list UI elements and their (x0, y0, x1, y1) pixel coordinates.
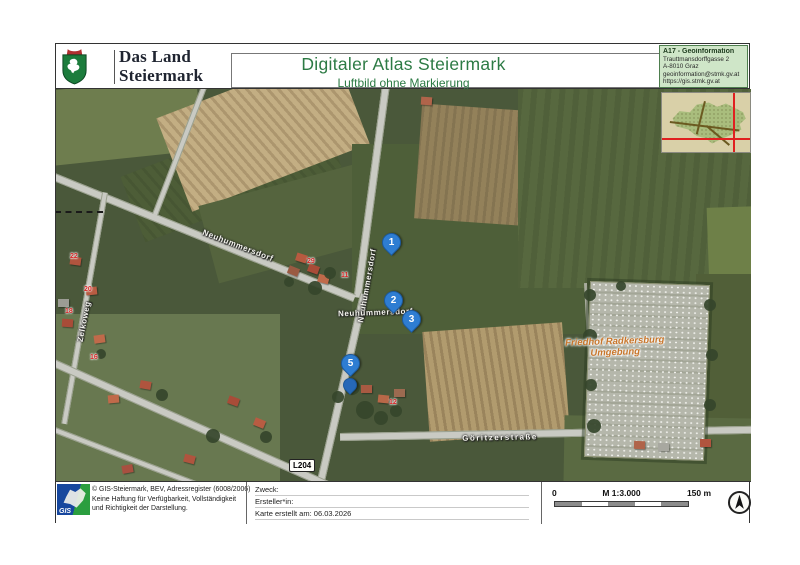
tree (587, 419, 601, 433)
tree (585, 379, 597, 391)
field-brown (414, 104, 526, 226)
house (361, 385, 372, 393)
marker-label: 3 (403, 311, 420, 328)
house-number: 11 (341, 272, 348, 279)
tree (390, 405, 402, 417)
house-number: 12 (389, 399, 397, 406)
department-city: A-8010 Graz (663, 63, 744, 71)
tree (260, 431, 272, 443)
house (421, 97, 433, 106)
grid-tick-mark (56, 211, 103, 213)
house-number: 16 (90, 354, 98, 361)
gis-logo-text: GIS (59, 508, 71, 515)
house (658, 443, 669, 451)
copyright-line2: Keine Haftung für Verfügbarkeit, Vollstä… (92, 495, 250, 505)
tree (356, 401, 374, 419)
scale-bar (554, 501, 689, 507)
cemetery-area (584, 281, 710, 461)
tree (206, 429, 220, 443)
house (634, 441, 645, 449)
house (378, 394, 390, 403)
scale-end-label: 150 m (667, 488, 731, 498)
marker-label: 1 (383, 234, 400, 251)
department-name: A17 - Geoinformation (663, 48, 744, 56)
house (307, 263, 320, 274)
tree (324, 267, 336, 279)
created-date-field: Karte erstellt am: 06.03.2026 (255, 508, 529, 520)
copyright-text: © GIS-Steiermark, BEV, Adressregister (6… (92, 485, 250, 514)
house (108, 395, 120, 404)
tree (706, 349, 718, 361)
logo-divider (114, 50, 115, 84)
tree (374, 411, 388, 425)
house (394, 389, 405, 397)
department-url: https://gis.stmk.gv.at (663, 78, 744, 86)
inset-crosshair-vertical (733, 93, 735, 152)
map-canvas[interactable]: Neuhummersdorf Neuhummersdorf Neuhummers… (56, 89, 751, 482)
house (139, 380, 151, 390)
gis-logo-landmass (61, 486, 87, 510)
house (700, 439, 711, 447)
house (58, 299, 69, 307)
house-number: 22 (70, 253, 78, 260)
tree (332, 391, 344, 403)
tree (584, 289, 596, 301)
route-badge-l204: L204 (289, 459, 315, 472)
map-sheet: Das Land Steiermark Digitaler Atlas Stei… (55, 43, 750, 523)
page-title: Digitaler Atlas Steiermark (116, 54, 691, 75)
inset-crosshair-horizontal (662, 138, 750, 140)
house (93, 334, 105, 343)
department-email: geoinformation@stmk.gv.at (663, 71, 744, 79)
title-wrap: Digitaler Atlas Steiermark Luftbild ohne… (116, 54, 691, 90)
gis-logo: GIS (57, 484, 90, 515)
tree (616, 281, 626, 291)
cemetery-label: Friedhof Radkersburg Umgebung (556, 334, 675, 360)
street-label-goritzerstrasse: Göritzerstraße (444, 432, 556, 443)
copyright-line3: und Richtigkeit der Darstellung. (92, 504, 250, 514)
marker-label: 5 (342, 355, 359, 372)
copyright-line1: © GIS-Steiermark, BEV, Adressregister (6… (92, 485, 250, 495)
footer-scale-box: 0 M 1:3.000 150 m (541, 482, 749, 524)
tree (704, 399, 716, 411)
marker-label: 2 (385, 292, 402, 309)
steiermark-coat-of-arms-icon (60, 47, 89, 86)
tree (284, 277, 294, 287)
footer-copyright-box: GIS © GIS-Steiermark, BEV, Adressregiste… (56, 482, 246, 524)
footer: GIS © GIS-Steiermark, BEV, Adressregiste… (56, 482, 749, 524)
field-plowed (422, 322, 569, 441)
purpose-field: Zweck: (255, 484, 529, 496)
tree (156, 389, 168, 401)
page-subtitle: Luftbild ohne Markierung (116, 76, 691, 90)
footer-meta-box: Zweck: Ersteller*in: Karte erstellt am: … (246, 482, 541, 524)
department-info-box: A17 - Geoinformation Trauttmansdorffgass… (659, 45, 748, 88)
map-meta: Zweck: Ersteller*in: Karte erstellt am: … (255, 484, 529, 520)
creator-field: Ersteller*in: (255, 496, 529, 508)
tree (704, 299, 716, 311)
house-number: 18 (65, 308, 73, 315)
header: Das Land Steiermark Digitaler Atlas Stei… (56, 44, 749, 89)
department-street: Trauttmansdorffgasse 2 (663, 56, 744, 64)
house-number: 29 (307, 258, 315, 265)
marker-label (344, 379, 356, 391)
overview-inset-map (661, 92, 751, 153)
field-meadow (56, 314, 280, 482)
house (62, 319, 74, 328)
north-arrow-icon (728, 491, 751, 514)
tree (308, 281, 322, 295)
